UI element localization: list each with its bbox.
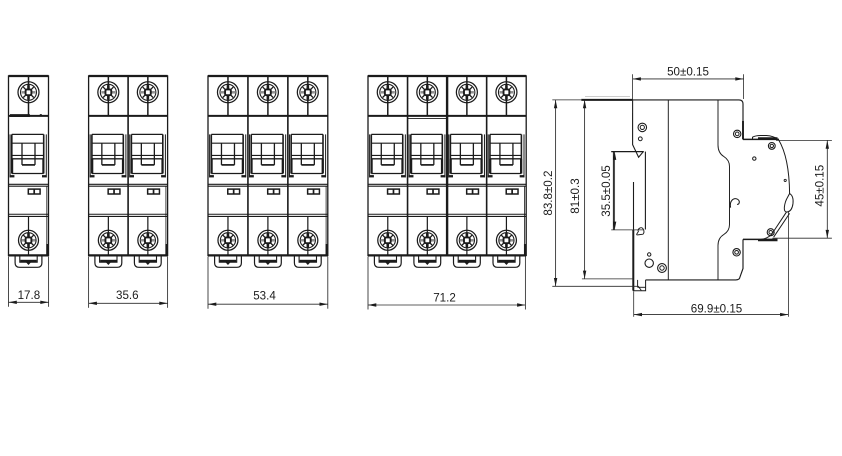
svg-text:50±0.15: 50±0.15 xyxy=(667,66,709,79)
svg-text:35.6: 35.6 xyxy=(116,289,139,302)
svg-text:81±0.3: 81±0.3 xyxy=(569,178,582,213)
svg-text:45±0.15: 45±0.15 xyxy=(814,165,827,207)
svg-text:83.8±0.2: 83.8±0.2 xyxy=(542,171,555,216)
svg-text:35.5±0.05: 35.5±0.05 xyxy=(600,165,613,217)
svg-text:53.4: 53.4 xyxy=(253,290,276,303)
svg-text:17.8: 17.8 xyxy=(18,289,41,302)
svg-text:69.9±0.15: 69.9±0.15 xyxy=(691,302,743,315)
svg-text:71.2: 71.2 xyxy=(433,291,456,304)
